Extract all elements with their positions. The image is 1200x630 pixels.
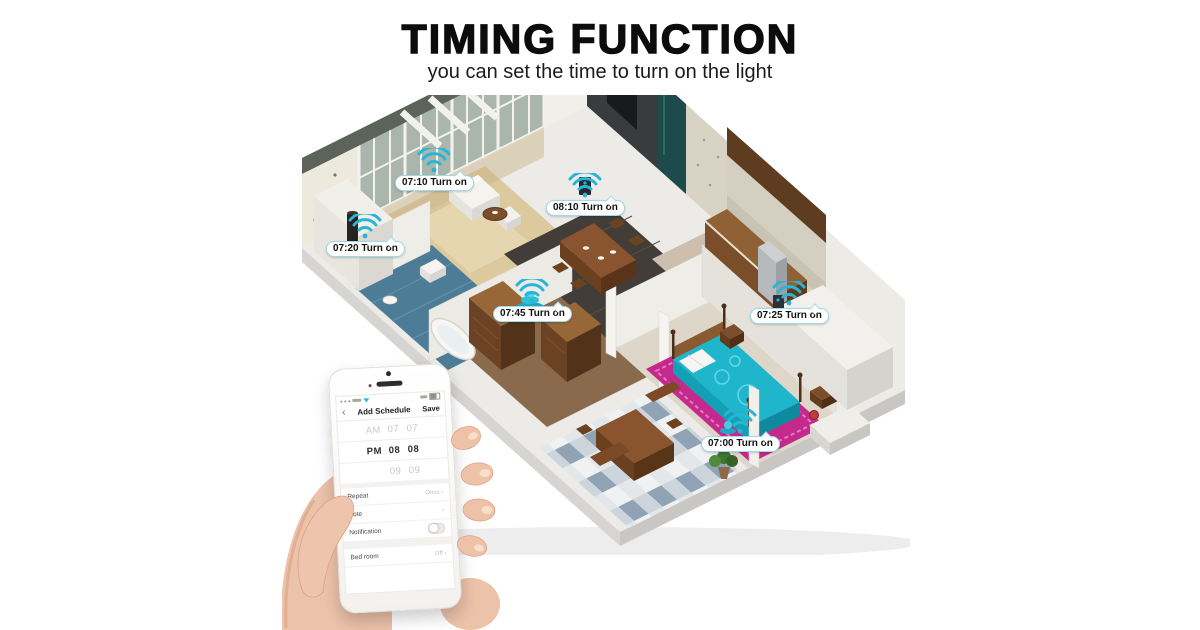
picker-hour: 08 xyxy=(388,444,402,456)
schedule-marker-media-wall: 08:10 Turn on xyxy=(546,173,625,216)
schedule-bubble: 07:20 Turn on xyxy=(326,241,405,257)
picker-minute: 09 xyxy=(408,464,422,476)
wifi-signal-icon xyxy=(723,409,757,435)
picker-period xyxy=(367,472,383,473)
schedule-marker-hall: 07:45 Turn on xyxy=(493,279,572,322)
schedule-bubble: 07:45 Turn on xyxy=(493,306,572,322)
picker-period: AM xyxy=(365,424,382,436)
room-value: Off › xyxy=(435,550,447,557)
back-button[interactable]: ‹ xyxy=(342,408,346,419)
repeat-label: Repeat xyxy=(347,492,368,500)
carrier-text xyxy=(352,399,361,402)
hand-holding-phone: ‹ Add Schedule Save AM 07 07 PM 08 08 09 xyxy=(270,352,510,630)
volume-up-button[interactable] xyxy=(329,427,332,438)
time-picker[interactable]: AM 07 07 PM 08 08 09 09 xyxy=(337,417,448,484)
schedule-bubble: 08:10 Turn on xyxy=(546,200,625,216)
notification-label: Notification xyxy=(349,528,381,537)
status-left xyxy=(340,398,369,404)
schedule-marker-bedroom: 07:00 Turn on xyxy=(701,409,780,452)
earpiece-speaker xyxy=(376,380,402,386)
picker-hour: 09 xyxy=(389,465,403,477)
notification-toggle[interactable] xyxy=(428,523,446,534)
room-card: Bed room Off › xyxy=(344,544,454,594)
picker-minute: 07 xyxy=(406,422,420,434)
signal-dot xyxy=(340,400,342,402)
screen-title: Add Schedule xyxy=(357,405,411,417)
proximity-sensor xyxy=(369,384,372,387)
schedule-marker-floor-lamp: 07:20 Turn on xyxy=(326,214,405,257)
schedule-bubble: 07:00 Turn on xyxy=(701,436,780,452)
repeat-value: Once › xyxy=(425,489,443,496)
picker-minute: 08 xyxy=(407,443,421,455)
page-title: TIMING FUNCTION xyxy=(0,16,1200,63)
note-value: › xyxy=(442,507,444,513)
schedule-bubble: 07:25 Turn on xyxy=(750,308,829,324)
schedule-bubble: 07:10 Turn on xyxy=(395,175,474,191)
wifi-signal-icon xyxy=(417,148,451,174)
save-button[interactable]: Save xyxy=(422,404,440,414)
picker-period: PM xyxy=(366,445,383,457)
time-text xyxy=(420,395,427,398)
room-label: Bed room xyxy=(350,553,379,561)
picker-hour: 07 xyxy=(387,423,401,435)
wifi-signal-icon xyxy=(568,173,602,199)
wifi-signal-icon xyxy=(515,279,549,305)
front-camera xyxy=(386,371,391,376)
toggle-knob xyxy=(429,524,438,533)
battery-icon xyxy=(429,393,440,400)
schedule-marker-living: 07:10 Turn on xyxy=(395,148,474,191)
schedule-marker-kitchen: 07:25 Turn on xyxy=(750,281,829,324)
wifi-signal-icon xyxy=(348,214,382,240)
schedule-settings: Repeat Once › Note › Notification Bed ro… xyxy=(341,478,455,594)
page-subtitle: you can set the time to turn on the ligh… xyxy=(0,61,1200,84)
wifi-status-icon xyxy=(363,398,369,402)
note-label: Note xyxy=(348,511,362,519)
wifi-signal-icon xyxy=(772,281,806,307)
signal-dot xyxy=(344,400,346,402)
status-right xyxy=(420,393,440,401)
signal-dot xyxy=(348,400,350,402)
volume-down-button[interactable] xyxy=(330,445,333,456)
smartphone: ‹ Add Schedule Save AM 07 07 PM 08 08 09 xyxy=(328,363,463,614)
phone-screen: ‹ Add Schedule Save AM 07 07 PM 08 08 09 xyxy=(335,390,455,594)
